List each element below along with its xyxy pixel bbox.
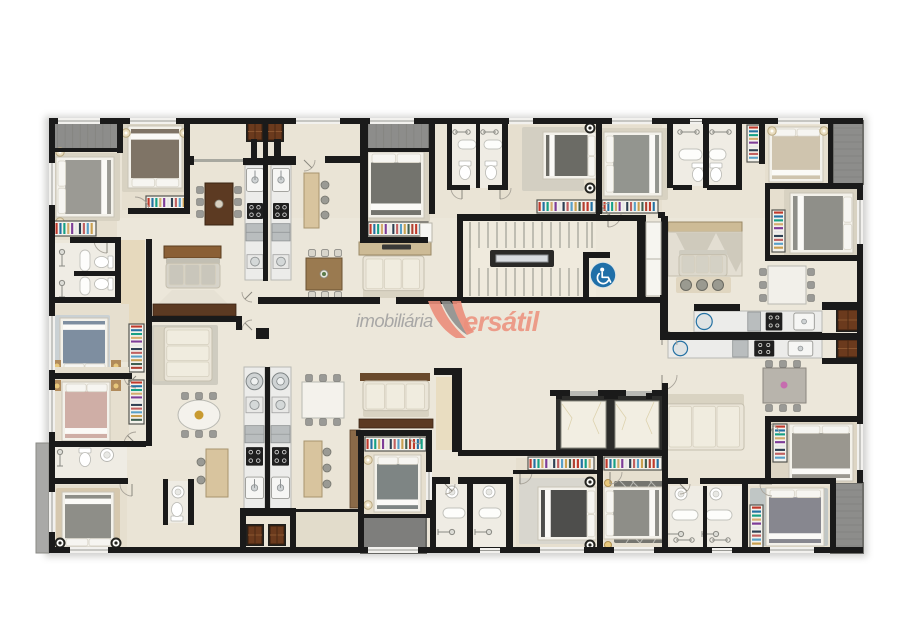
svg-text:imobiliária: imobiliária (356, 310, 433, 331)
svg-text:ersátil: ersátil (463, 306, 541, 337)
